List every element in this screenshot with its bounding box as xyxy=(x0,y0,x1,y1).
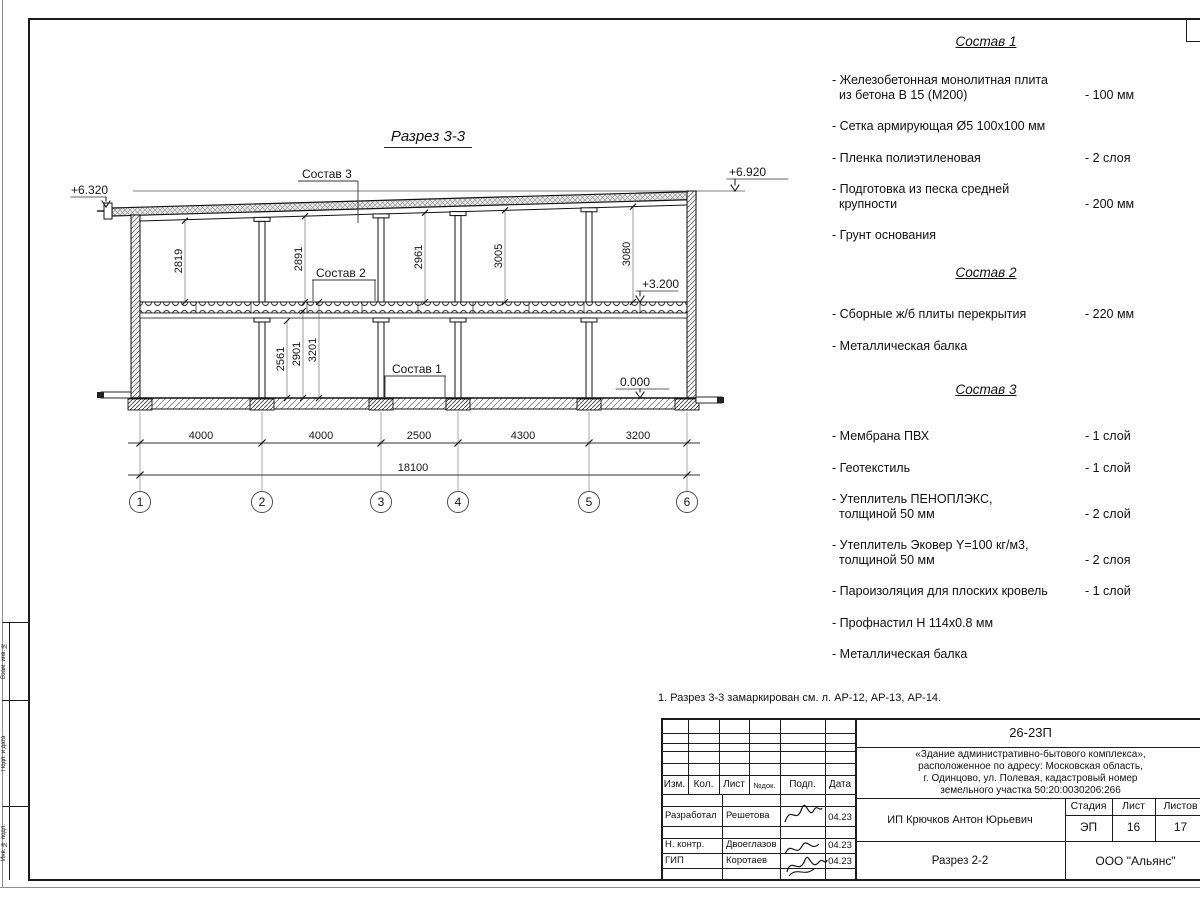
axis-number: 4 xyxy=(455,495,462,509)
dimension-label: 3005 xyxy=(493,244,505,268)
sheets-label: Листов xyxy=(1155,801,1200,813)
dimension-label: 3080 xyxy=(621,242,633,266)
material-name: - Грунт основания xyxy=(832,228,1140,243)
company-name: ООО "Альянс" xyxy=(1065,855,1200,868)
material-value: - 2 слой xyxy=(1085,507,1131,522)
leader-label: Состав 1 xyxy=(392,362,442,376)
signature xyxy=(782,800,824,830)
span-dimension: 4300 xyxy=(511,430,535,442)
object-description: земельного участка 50:20:0030206:266 xyxy=(860,785,1200,796)
column-header-ndok: №док. xyxy=(749,782,780,790)
material-item: - Сетка армирующая Ø5 100х100 мм xyxy=(832,119,1140,134)
material-item: - Металлическая балка xyxy=(832,339,1140,354)
axis-number: 3 xyxy=(378,495,385,509)
drawing-note: 1. Разрез 3-3 замаркирован см. л. АР-12,… xyxy=(658,692,941,704)
material-item: - Утеплитель ПЕНОПЛЭКС, толщиной 50 мм -… xyxy=(832,492,1140,521)
composition-title: Состав 1 xyxy=(832,34,1140,49)
elevation-value: +6.920 xyxy=(729,165,766,179)
floor-slab xyxy=(140,302,687,318)
material-name: - Металлическая балка xyxy=(832,339,1140,354)
material-item: - Утеплитель Эковер Y=100 кг/м3, толщино… xyxy=(832,538,1140,567)
object-description: «Здание административно-бытового комплек… xyxy=(860,749,1200,760)
column-header-data: Дата xyxy=(825,779,855,790)
dimension-chain: 4000 4000 2500 4300 3200 18100 xyxy=(128,412,700,491)
person-name: Решетова xyxy=(726,811,770,821)
column-header-list: Лист xyxy=(719,779,749,790)
dimension-label: 2961 xyxy=(413,245,425,269)
stage-value: ЭП xyxy=(1065,821,1112,834)
material-item: - Металлическая балка xyxy=(832,647,1140,662)
material-item: - Пароизоляция для плоских кровель - 1 с… xyxy=(832,584,1140,599)
material-item: - Профнастил Н 114х0.8 мм xyxy=(832,616,1140,631)
ground-slab xyxy=(97,392,724,410)
axis-number: 2 xyxy=(259,495,266,509)
span-dimension: 4000 xyxy=(309,430,333,442)
sheet-number: 16 xyxy=(1112,821,1155,834)
role-label: Н. контр. xyxy=(665,840,704,850)
column-header-kol: Кол. xyxy=(688,779,719,790)
material-name: - Профнастил Н 114х0.8 мм xyxy=(832,616,1140,631)
leader-label: Состав 2 xyxy=(316,266,366,280)
dimension-label: 3201 xyxy=(307,338,319,362)
stage-label: Стадия xyxy=(1065,801,1112,813)
material-value: - 200 мм xyxy=(1085,197,1134,212)
span-dimension: 4000 xyxy=(189,430,213,442)
dimensions-storey2: 2819 2891 2961 3005 3080 xyxy=(173,204,636,305)
divider xyxy=(1065,815,1200,816)
elevation-value: +3.200 xyxy=(642,277,679,291)
columns-storey1 xyxy=(254,318,597,398)
elevation-value: 0.000 xyxy=(620,375,650,389)
composition-list-1: Состав 1 - Железобетонная монолитная пли… xyxy=(832,34,1140,260)
divider xyxy=(661,718,1200,720)
column-header-podp: Подп. xyxy=(780,779,825,790)
material-value: - 1 слой xyxy=(1085,584,1131,599)
material-name: - Утеплитель ПЕНОПЛЭКС, xyxy=(832,492,1140,507)
object-description: расположенное по адресу: Московская обла… xyxy=(860,761,1200,772)
material-item: - Подготовка из песка средней крупности … xyxy=(832,182,1140,211)
elevation-value: +6.320 xyxy=(71,183,108,197)
material-value: - 1 слой xyxy=(1085,461,1131,476)
axis-number: 6 xyxy=(684,495,691,509)
material-value: - 220 мм xyxy=(1085,307,1134,322)
material-item: - Железобетонная монолитная плита из бет… xyxy=(832,73,1140,102)
material-value: - 1 слой xyxy=(1085,429,1131,444)
axis-number: 1 xyxy=(137,495,144,509)
material-item: - Геотекстиль - 1 слой xyxy=(832,461,1140,476)
drawing-title: Разрез 3-3 xyxy=(384,128,472,148)
column-header-izm: Изм. xyxy=(661,779,688,790)
divider xyxy=(661,718,663,880)
material-name: - Железобетонная монолитная плита xyxy=(832,73,1140,88)
span-dimension: 3200 xyxy=(626,430,650,442)
material-name: - Металлическая балка xyxy=(832,647,1140,662)
document-number: 26-23П xyxy=(855,726,1200,740)
date-value: 04.23 xyxy=(825,841,855,851)
material-item: - Мембрана ПВХ - 1 слой xyxy=(832,429,1140,444)
material-value: - 2 слоя xyxy=(1085,553,1130,568)
material-name: - Утеплитель Эковер Y=100 кг/м3, xyxy=(832,538,1140,553)
divider xyxy=(722,794,723,880)
material-value: - 100 мм xyxy=(1085,88,1134,103)
customer-name: ИП Крючков Антон Юрьевич xyxy=(855,814,1065,826)
material-item: - Сборные ж/б плиты перекрытия - 220 мм xyxy=(832,307,1140,322)
material-name: - Подготовка из песка средней xyxy=(832,182,1140,197)
divider xyxy=(855,747,1200,748)
drawing-sheet: Взам. инв. № Подп. и дата Инв. № подл. xyxy=(0,0,1200,900)
role-label: Разработал xyxy=(665,811,717,821)
total-dimension: 18100 xyxy=(398,462,429,474)
object-description: г. Одинцово, ул. Полевая, кадастровый но… xyxy=(860,773,1200,784)
person-name: Двоеглазов xyxy=(726,840,777,850)
material-name: - Сетка армирующая Ø5 100х100 мм xyxy=(832,119,1140,134)
date-value: 04.23 xyxy=(825,857,855,867)
dimension-label: 2901 xyxy=(291,342,303,366)
signature xyxy=(781,838,829,879)
composition-title: Состав 3 xyxy=(832,382,1140,397)
span-dimension: 2500 xyxy=(407,430,431,442)
role-label: ГИП xyxy=(665,856,684,866)
divider xyxy=(855,841,1200,842)
composition-list-2: Состав 2 - Сборные ж/б плиты перекрытия … xyxy=(832,265,1140,370)
leader-label: Состав 3 xyxy=(302,167,352,181)
roof-slab xyxy=(97,192,696,222)
sheet-title: Разрез 2-2 xyxy=(855,855,1065,868)
dimension-label: 2891 xyxy=(293,247,305,271)
material-value: - 2 слоя xyxy=(1085,151,1130,166)
dimension-label: 2561 xyxy=(275,347,287,371)
sheet-label: Лист xyxy=(1112,801,1155,813)
sheets-total: 17 xyxy=(1155,821,1200,834)
dimension-label: 2819 xyxy=(173,249,185,273)
person-name: Коротаев xyxy=(726,856,767,866)
material-item: - Грунт основания xyxy=(832,228,1140,243)
date-value: 04.23 xyxy=(825,813,855,823)
divider xyxy=(855,798,1200,799)
composition-list-3: Состав 3 - Мембрана ПВХ - 1 слой - Геоте… xyxy=(832,382,1140,679)
axis-number: 5 xyxy=(586,495,593,509)
grid-axes: 1 2 3 4 5 6 xyxy=(130,492,698,513)
columns-storey2 xyxy=(254,208,597,302)
composition-title: Состав 2 xyxy=(832,265,1140,280)
material-item: - Пленка полиэтиленовая - 2 слоя xyxy=(832,151,1140,166)
